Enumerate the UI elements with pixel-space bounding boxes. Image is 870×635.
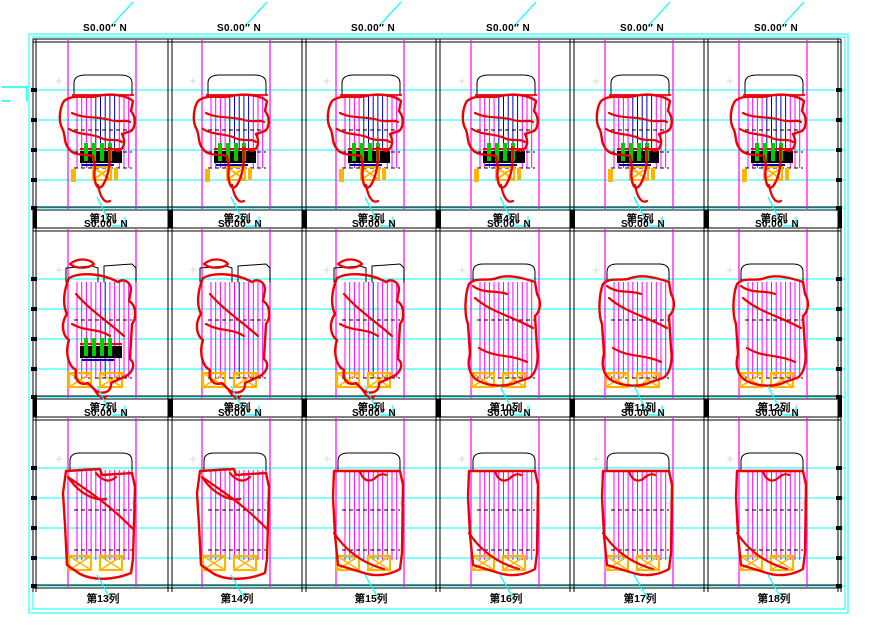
orange-post <box>114 168 118 180</box>
frame-tick <box>31 88 37 92</box>
frame-tick <box>836 307 842 311</box>
frame-tick <box>836 88 842 92</box>
panel-title: S0.00″ N <box>217 23 261 34</box>
column-label: 第18列 <box>758 592 791 605</box>
frame-tick <box>31 367 37 371</box>
orange-post <box>205 169 210 182</box>
drawing-sheet: S0.00″ N第1列S0.00″ N第7列S0.00″ N第13列S0.00″… <box>0 0 870 635</box>
frame-tick <box>836 178 842 182</box>
frame-tick <box>836 584 842 588</box>
frame-tick <box>31 466 37 470</box>
separator-bar <box>570 399 575 417</box>
frame-tick <box>31 556 37 560</box>
frame-tick <box>31 277 37 281</box>
panel-title: S0.00″ N <box>487 219 531 230</box>
panel-title: S0.00″ N <box>486 23 530 34</box>
separator-bar <box>168 399 173 417</box>
green-anchor-bar <box>368 143 372 161</box>
separator-bar <box>436 210 441 228</box>
column-label: 第15列 <box>355 592 388 605</box>
orange-post <box>382 168 386 180</box>
column-label: 第14列 <box>221 592 254 605</box>
frame-tick <box>836 277 842 281</box>
panel-title: S0.00″ N <box>84 408 128 419</box>
separator-bar <box>704 399 709 417</box>
green-anchor-bar <box>503 143 507 161</box>
panel-title: S0.00″ N <box>621 219 665 230</box>
separator-bar <box>704 210 709 228</box>
column-label: 第16列 <box>490 592 523 605</box>
panel-title: S0.00″ N <box>352 219 396 230</box>
separator-bar <box>436 399 441 417</box>
frame-tick <box>31 584 37 588</box>
orange-post <box>651 168 655 180</box>
green-anchor-bar <box>84 143 88 161</box>
separator-bar <box>838 399 842 417</box>
frame-tick <box>31 307 37 311</box>
frame-tick <box>31 118 37 122</box>
green-anchor-bar <box>100 338 104 356</box>
panel-title: S0.00″ N <box>620 23 664 34</box>
green-anchor-bar <box>84 338 88 356</box>
separator-bar <box>302 210 307 228</box>
frame-tick <box>836 206 842 210</box>
green-anchor-bar <box>100 143 104 161</box>
frame-tick <box>836 367 842 371</box>
panel-title: S0.00″ N <box>754 23 798 34</box>
frame-tick <box>836 337 842 341</box>
frame-tick <box>31 496 37 500</box>
frame-tick <box>31 337 37 341</box>
panel-title: S0.00″ N <box>487 408 531 419</box>
orange-post <box>785 168 789 180</box>
panel-title: S0.00″ N <box>84 219 128 230</box>
separator-bar <box>838 210 842 228</box>
frame-tick <box>31 395 37 399</box>
orange-post <box>517 168 521 180</box>
panel-title: S0.00″ N <box>621 408 665 419</box>
green-anchor-bar <box>487 143 491 161</box>
panel-title: S0.00″ N <box>352 408 396 419</box>
green-anchor-bar <box>637 143 641 161</box>
frame-tick <box>836 148 842 152</box>
green-anchor-bar <box>771 143 775 161</box>
orange-post <box>339 169 344 182</box>
separator-bar <box>570 210 575 228</box>
orange-post <box>742 169 747 182</box>
green-anchor-bar <box>621 143 625 161</box>
column-label: 第17列 <box>624 592 657 605</box>
frame-tick <box>31 178 37 182</box>
panel-title: S0.00″ N <box>218 408 262 419</box>
green-anchor-bar <box>234 143 238 161</box>
frame-tick <box>836 496 842 500</box>
orange-post <box>248 168 252 180</box>
panel-title: S0.00″ N <box>351 23 395 34</box>
separator-bar <box>302 399 307 417</box>
frame-tick <box>836 395 842 399</box>
frame-tick <box>836 118 842 122</box>
orange-post <box>608 169 613 182</box>
panel-title: S0.00″ N <box>755 408 799 419</box>
frame-tick <box>31 526 37 530</box>
frame-tick <box>31 148 37 152</box>
green-anchor-bar <box>92 338 96 356</box>
orange-post <box>474 169 479 182</box>
green-anchor-bar <box>218 143 222 161</box>
separator-bar <box>33 210 37 228</box>
column-label: 第13列 <box>87 592 120 605</box>
frame-tick <box>836 466 842 470</box>
panel-title: S0.00″ N <box>755 219 799 230</box>
panel-title: S0.00″ N <box>83 23 127 34</box>
panel-title: S0.00″ N <box>218 219 262 230</box>
separator-bar <box>33 399 37 417</box>
frame-tick <box>836 526 842 530</box>
frame-tick <box>836 556 842 560</box>
frame-tick <box>31 206 37 210</box>
orange-post <box>71 169 76 182</box>
green-anchor-bar <box>108 338 112 356</box>
green-anchor-bar <box>755 143 759 161</box>
separator-bar <box>168 210 173 228</box>
green-anchor-bar <box>352 143 356 161</box>
cad-canvas: S0.00″ N第1列S0.00″ N第7列S0.00″ N第13列S0.00″… <box>0 0 870 635</box>
